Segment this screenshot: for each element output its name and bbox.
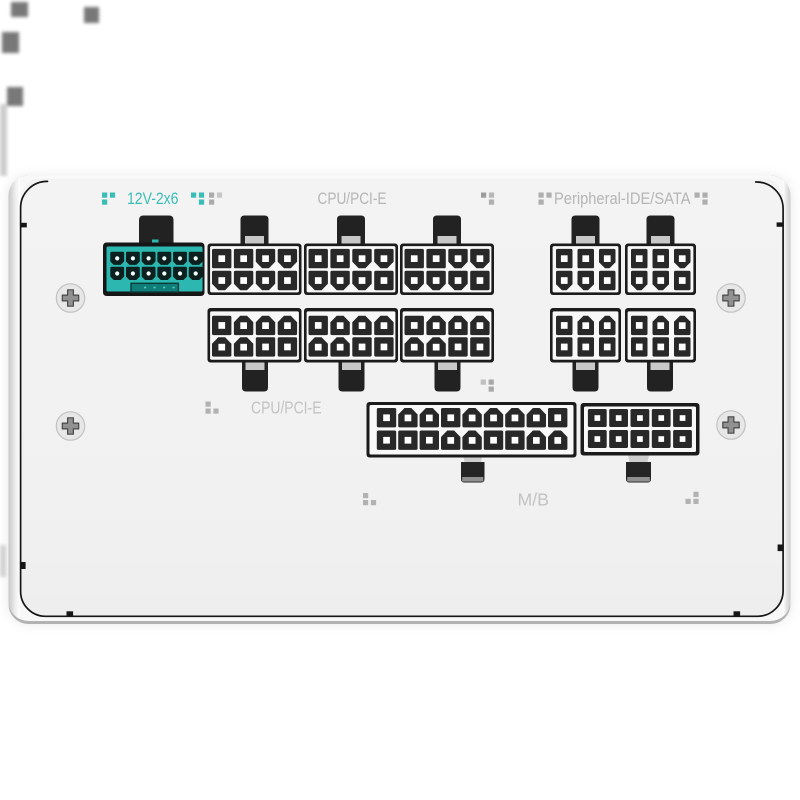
svg-text:12V-2x6: 12V-2x6 [127, 189, 179, 208]
svg-text:CPU/PCI-E: CPU/PCI-E [318, 189, 387, 208]
svg-text:Peripheral-IDE/SATA: Peripheral-IDE/SATA [554, 189, 691, 208]
svg-text:M/B: M/B [518, 490, 550, 510]
svg-text:CPU/PCI-E: CPU/PCI-E [251, 398, 322, 418]
